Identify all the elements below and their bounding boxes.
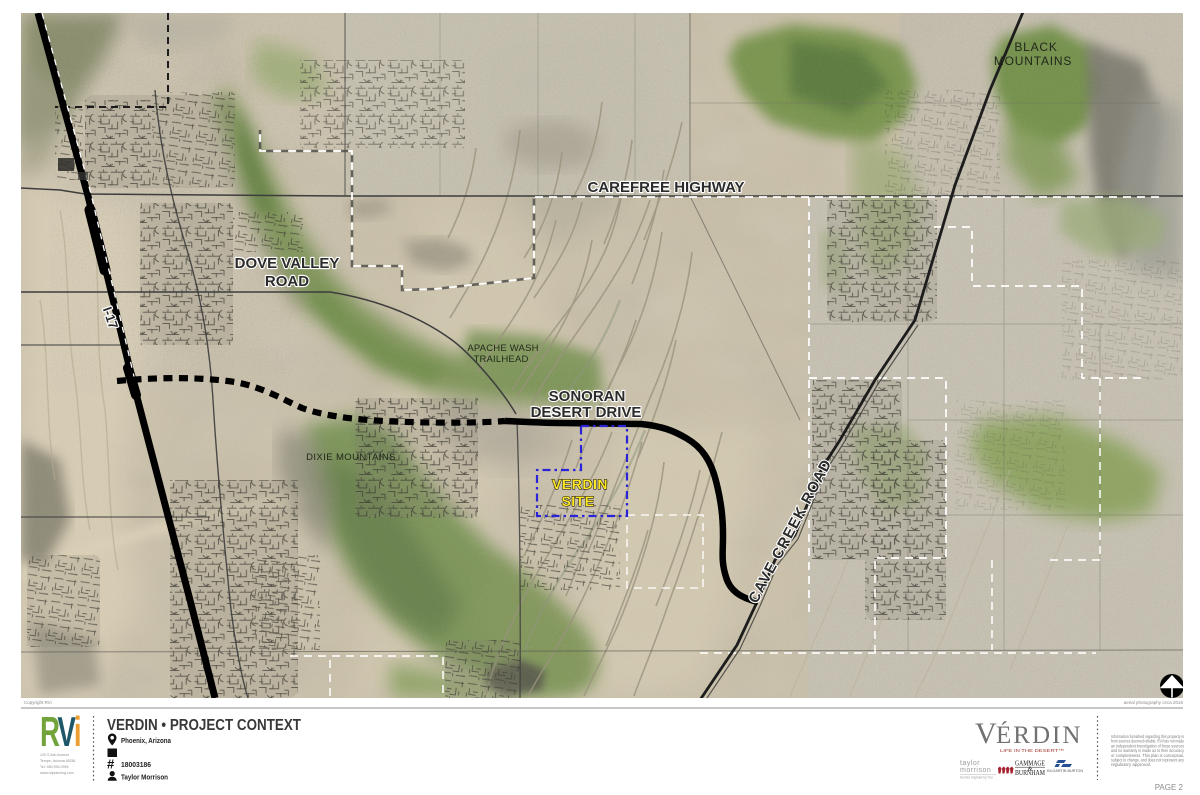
- svg-text:PAGE 2: PAGE 2: [1155, 783, 1184, 792]
- svg-text:DOVE VALLEY: DOVE VALLEY: [235, 255, 340, 272]
- svg-text:#: #: [107, 757, 115, 772]
- svg-text:KILGARTIN BURTON: KILGARTIN BURTON: [1047, 769, 1084, 773]
- svg-text:regulatory approval.: regulatory approval.: [1111, 762, 1151, 767]
- svg-text:morrison: morrison: [960, 767, 991, 774]
- svg-text:VERDIN: VERDIN: [552, 476, 608, 492]
- svg-text:&: &: [1028, 767, 1033, 773]
- svg-text:120 S Ash Avenue: 120 S Ash Avenue: [40, 753, 69, 757]
- svg-text:Tel: 480.994.0994: Tel: 480.994.0994: [40, 765, 69, 769]
- svg-text:ROAD: ROAD: [265, 273, 309, 290]
- svg-text:APACHE WASH: APACHE WASH: [467, 343, 538, 354]
- svg-text:DESERT DRIVE: DESERT DRIVE: [531, 404, 642, 421]
- svg-text:Homes Inspired by You: Homes Inspired by You: [960, 776, 993, 780]
- svg-text:TRAILHEAD: TRAILHEAD: [473, 354, 528, 365]
- svg-text:taylor: taylor: [960, 760, 980, 767]
- svg-text:SONORAN: SONORAN: [549, 388, 626, 405]
- svg-text:VERDIN • PROJECT CONTEXT: VERDIN • PROJECT CONTEXT: [107, 717, 301, 734]
- svg-text:RVi: RVi: [40, 708, 80, 755]
- svg-text:ÉRDIN: ÉRDIN: [996, 721, 1082, 749]
- svg-text:Copyright RVi: Copyright RVi: [24, 700, 52, 705]
- svg-text:aerial photography circa 2018: aerial photography circa 2018: [1124, 700, 1184, 705]
- svg-text:MOUNTAINS: MOUNTAINS: [994, 54, 1072, 68]
- svg-text:LIFE IN THE DESERT™: LIFE IN THE DESERT™: [1000, 748, 1064, 753]
- svg-text:V: V: [975, 717, 997, 750]
- svg-text:18003186: 18003186: [121, 760, 151, 769]
- svg-text:www.rviplanning.com: www.rviplanning.com: [40, 771, 74, 775]
- svg-text:SITE: SITE: [561, 493, 594, 509]
- svg-text:CAREFREE HIGHWAY: CAREFREE HIGHWAY: [588, 179, 745, 196]
- svg-text:Tempe, Arizona 85281: Tempe, Arizona 85281: [40, 759, 76, 763]
- svg-text:BLACK: BLACK: [1014, 40, 1057, 54]
- svg-text:DIXIE MOUNTAINS: DIXIE MOUNTAINS: [306, 452, 396, 463]
- svg-text:Taylor Morrison: Taylor Morrison: [121, 773, 168, 782]
- svg-text:Phoenix, Arizona: Phoenix, Arizona: [121, 736, 172, 745]
